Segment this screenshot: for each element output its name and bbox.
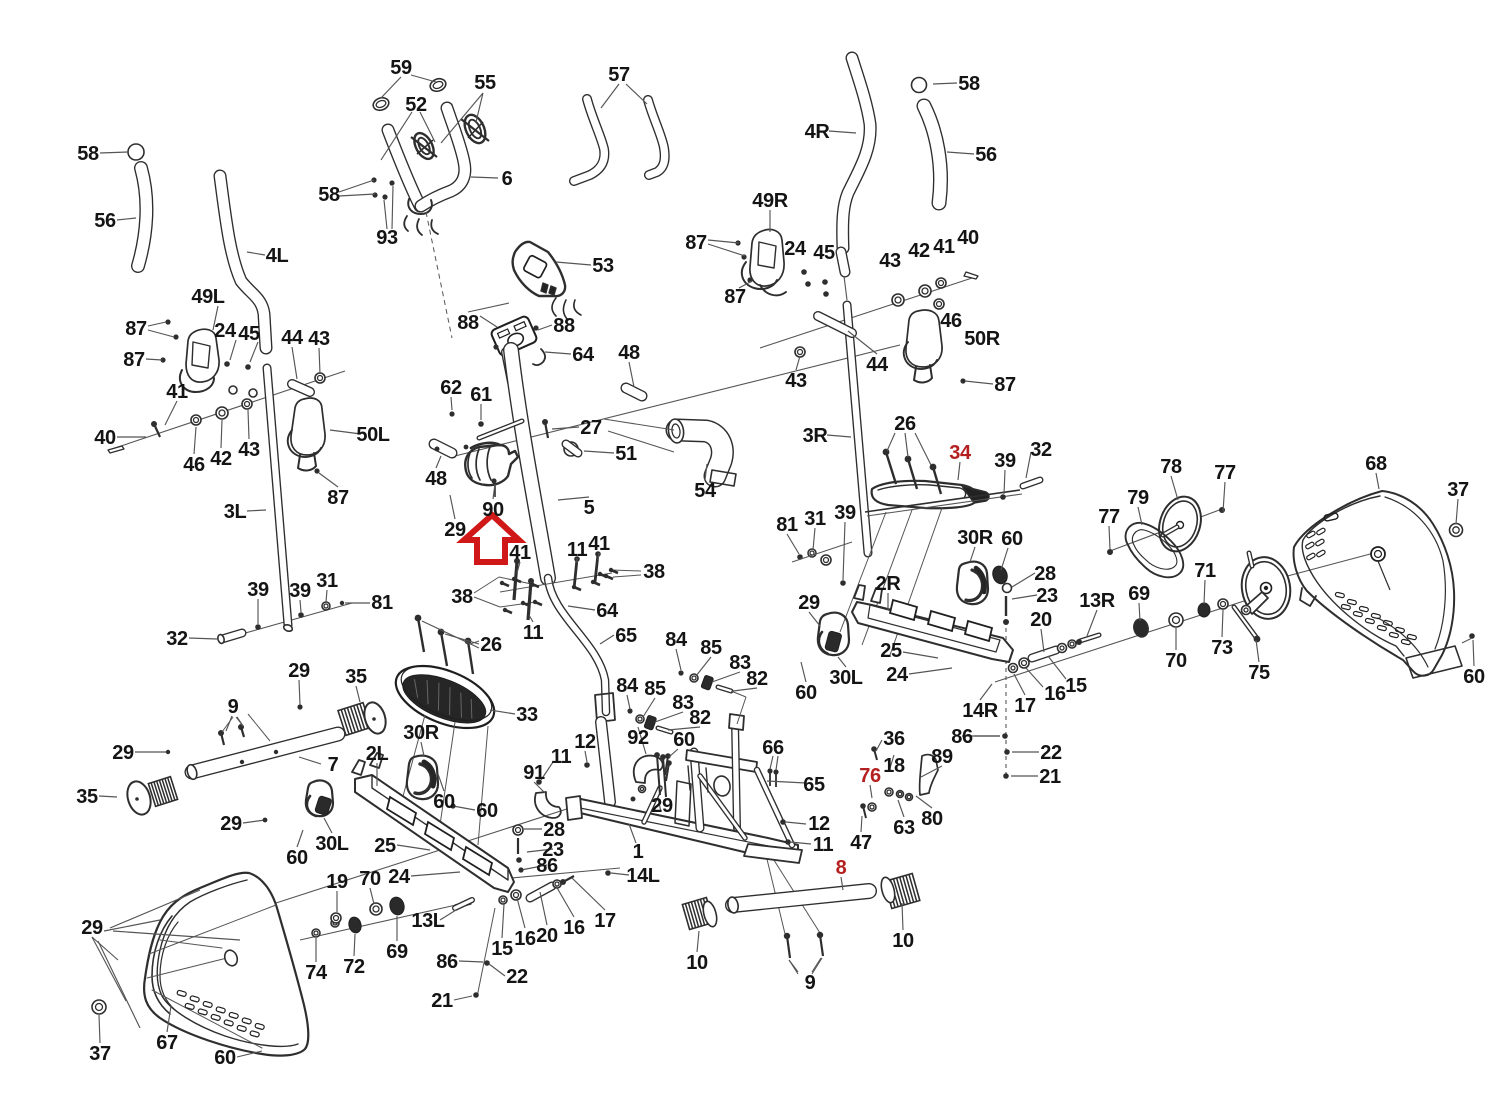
svg-text:47: 47	[850, 832, 872, 854]
svg-text:91: 91	[523, 762, 545, 784]
svg-text:11: 11	[523, 622, 544, 644]
svg-text:16: 16	[563, 917, 585, 939]
svg-text:12: 12	[574, 731, 596, 753]
svg-text:84: 84	[665, 629, 688, 651]
svg-text:30L: 30L	[829, 667, 862, 689]
svg-text:92: 92	[627, 727, 649, 749]
svg-text:85: 85	[700, 637, 722, 659]
svg-text:65: 65	[803, 774, 825, 796]
svg-text:37: 37	[1447, 479, 1469, 501]
svg-text:60: 60	[286, 847, 308, 869]
svg-text:17: 17	[1014, 695, 1036, 717]
svg-text:71: 71	[1194, 560, 1216, 582]
svg-text:48: 48	[618, 342, 640, 364]
svg-text:48: 48	[425, 468, 447, 490]
svg-text:60: 60	[214, 1047, 236, 1069]
svg-text:61: 61	[470, 384, 492, 406]
svg-text:54: 54	[694, 480, 717, 502]
svg-text:1: 1	[633, 841, 644, 863]
svg-text:20: 20	[536, 925, 558, 947]
svg-text:40: 40	[957, 227, 979, 249]
svg-text:86: 86	[536, 855, 558, 877]
svg-text:29: 29	[444, 519, 466, 541]
svg-text:87: 87	[327, 487, 349, 509]
svg-text:24: 24	[886, 664, 909, 686]
svg-text:60: 60	[673, 729, 695, 751]
svg-text:39: 39	[247, 579, 269, 601]
svg-text:88: 88	[553, 315, 575, 337]
svg-text:29: 29	[288, 660, 310, 682]
svg-text:72: 72	[343, 956, 365, 978]
svg-text:10: 10	[686, 952, 708, 974]
svg-text:4R: 4R	[805, 121, 831, 143]
svg-text:49L: 49L	[191, 286, 224, 308]
svg-text:81: 81	[371, 592, 393, 614]
svg-text:15: 15	[491, 938, 513, 960]
svg-text:75: 75	[1248, 662, 1270, 684]
svg-text:14R: 14R	[962, 700, 998, 722]
svg-text:10: 10	[892, 930, 914, 952]
svg-text:87: 87	[994, 374, 1016, 396]
svg-text:29: 29	[651, 795, 673, 817]
svg-text:90: 90	[482, 499, 504, 521]
svg-text:38: 38	[451, 586, 473, 608]
svg-text:87: 87	[685, 232, 707, 254]
svg-text:67: 67	[156, 1032, 178, 1054]
svg-text:5: 5	[584, 497, 595, 519]
svg-text:57: 57	[608, 64, 630, 86]
svg-text:46: 46	[940, 310, 962, 332]
svg-text:73: 73	[1211, 637, 1233, 659]
svg-text:81: 81	[776, 514, 798, 536]
svg-text:29: 29	[112, 742, 134, 764]
svg-text:55: 55	[474, 72, 496, 94]
svg-text:28: 28	[543, 819, 565, 841]
svg-text:21: 21	[1039, 766, 1061, 788]
svg-text:43: 43	[238, 439, 260, 461]
svg-text:86: 86	[951, 726, 973, 748]
svg-text:49R: 49R	[752, 190, 788, 212]
svg-text:18: 18	[883, 755, 905, 777]
svg-text:33: 33	[516, 704, 538, 726]
svg-text:77: 77	[1214, 462, 1236, 484]
svg-text:11: 11	[813, 834, 834, 856]
svg-text:35: 35	[345, 666, 367, 688]
svg-text:60: 60	[476, 800, 498, 822]
svg-text:6: 6	[502, 168, 513, 190]
svg-text:3L: 3L	[224, 501, 247, 523]
svg-text:87: 87	[125, 318, 147, 340]
svg-text:26: 26	[480, 634, 502, 656]
svg-text:69: 69	[1128, 583, 1150, 605]
svg-text:68: 68	[1365, 453, 1387, 475]
svg-text:88: 88	[457, 312, 479, 334]
svg-text:12: 12	[808, 813, 830, 835]
svg-text:65: 65	[615, 625, 637, 647]
svg-text:27: 27	[580, 417, 602, 439]
svg-text:50R: 50R	[964, 328, 1000, 350]
svg-text:7: 7	[328, 754, 339, 776]
svg-text:84: 84	[616, 675, 639, 697]
svg-text:31: 31	[804, 508, 826, 530]
svg-text:60: 60	[433, 791, 455, 813]
svg-text:79: 79	[1127, 487, 1149, 509]
svg-text:4L: 4L	[266, 245, 289, 267]
svg-text:13R: 13R	[1079, 590, 1115, 612]
svg-text:20: 20	[1030, 609, 1052, 631]
svg-text:16: 16	[1044, 683, 1066, 705]
svg-text:82: 82	[746, 668, 768, 690]
svg-text:58: 58	[958, 73, 980, 95]
svg-text:69: 69	[386, 941, 408, 963]
svg-text:30R: 30R	[403, 722, 439, 744]
svg-text:41: 41	[509, 542, 531, 564]
svg-text:31: 31	[316, 570, 338, 592]
svg-text:77: 77	[1098, 506, 1120, 528]
svg-text:29: 29	[798, 592, 820, 614]
svg-text:89: 89	[931, 746, 953, 768]
svg-text:32: 32	[166, 628, 188, 650]
svg-text:43: 43	[785, 370, 807, 392]
svg-text:56: 56	[975, 144, 997, 166]
svg-text:58: 58	[77, 143, 99, 165]
svg-text:16: 16	[514, 928, 536, 950]
svg-text:66: 66	[762, 737, 784, 759]
svg-text:29: 29	[220, 813, 242, 835]
svg-text:2L: 2L	[366, 743, 389, 765]
svg-text:76: 76	[859, 765, 881, 787]
svg-text:63: 63	[893, 817, 915, 839]
svg-text:9: 9	[805, 972, 816, 994]
svg-text:34: 34	[949, 442, 972, 464]
svg-text:28: 28	[1034, 563, 1056, 585]
svg-text:30L: 30L	[315, 833, 348, 855]
svg-text:59: 59	[390, 57, 412, 79]
svg-text:43: 43	[308, 328, 330, 350]
svg-text:86: 86	[436, 951, 458, 973]
svg-text:39: 39	[834, 502, 856, 524]
svg-text:70: 70	[359, 868, 381, 890]
svg-text:45: 45	[813, 242, 835, 264]
svg-text:37: 37	[89, 1043, 111, 1065]
svg-text:24: 24	[214, 320, 237, 342]
svg-text:70: 70	[1165, 650, 1187, 672]
svg-text:80: 80	[921, 808, 943, 830]
svg-text:40: 40	[94, 427, 116, 449]
svg-text:11: 11	[551, 746, 572, 768]
svg-text:26: 26	[894, 413, 916, 435]
svg-text:42: 42	[210, 448, 232, 470]
svg-text:11: 11	[567, 539, 588, 561]
svg-text:9: 9	[228, 696, 239, 718]
svg-text:14L: 14L	[626, 865, 659, 887]
svg-text:85: 85	[644, 678, 666, 700]
svg-text:64: 64	[572, 344, 595, 366]
svg-text:93: 93	[376, 227, 398, 249]
svg-text:44: 44	[866, 354, 889, 376]
svg-text:3R: 3R	[803, 425, 829, 447]
svg-text:53: 53	[592, 255, 614, 277]
svg-text:32: 32	[1030, 439, 1052, 461]
svg-text:41: 41	[588, 533, 610, 555]
svg-text:64: 64	[596, 600, 619, 622]
svg-text:56: 56	[94, 210, 116, 232]
svg-text:38: 38	[643, 561, 665, 583]
svg-text:35: 35	[76, 786, 98, 808]
svg-text:13L: 13L	[411, 910, 444, 932]
svg-text:25: 25	[374, 835, 396, 857]
svg-text:25: 25	[880, 640, 902, 662]
svg-text:2R: 2R	[876, 573, 902, 595]
svg-text:82: 82	[689, 707, 711, 729]
svg-text:21: 21	[431, 990, 453, 1012]
svg-text:39: 39	[994, 450, 1016, 472]
svg-text:87: 87	[123, 349, 145, 371]
svg-text:60: 60	[1463, 666, 1485, 688]
svg-text:50L: 50L	[356, 424, 389, 446]
svg-text:15: 15	[1065, 675, 1087, 697]
svg-text:87: 87	[724, 286, 746, 308]
svg-text:22: 22	[1040, 742, 1062, 764]
svg-text:39: 39	[289, 580, 311, 602]
svg-text:8: 8	[836, 857, 847, 879]
svg-text:36: 36	[883, 728, 905, 750]
svg-text:30R: 30R	[957, 527, 993, 549]
svg-text:43: 43	[879, 250, 901, 272]
svg-text:58: 58	[318, 184, 340, 206]
svg-text:23: 23	[1036, 585, 1058, 607]
svg-text:42: 42	[908, 240, 930, 262]
svg-text:52: 52	[405, 94, 427, 116]
svg-text:29: 29	[81, 917, 103, 939]
svg-text:17: 17	[594, 910, 616, 932]
svg-text:22: 22	[506, 966, 528, 988]
svg-text:44: 44	[281, 327, 304, 349]
svg-text:51: 51	[615, 443, 637, 465]
svg-text:41: 41	[933, 236, 955, 258]
svg-text:41: 41	[166, 381, 188, 403]
svg-text:24: 24	[784, 238, 807, 260]
svg-text:46: 46	[183, 454, 205, 476]
svg-text:45: 45	[238, 323, 260, 345]
svg-text:19: 19	[326, 871, 348, 893]
svg-text:74: 74	[305, 962, 328, 984]
svg-text:24: 24	[388, 866, 411, 888]
svg-text:60: 60	[795, 682, 817, 704]
svg-text:60: 60	[1001, 528, 1023, 550]
svg-text:62: 62	[440, 377, 462, 399]
svg-text:78: 78	[1160, 456, 1182, 478]
